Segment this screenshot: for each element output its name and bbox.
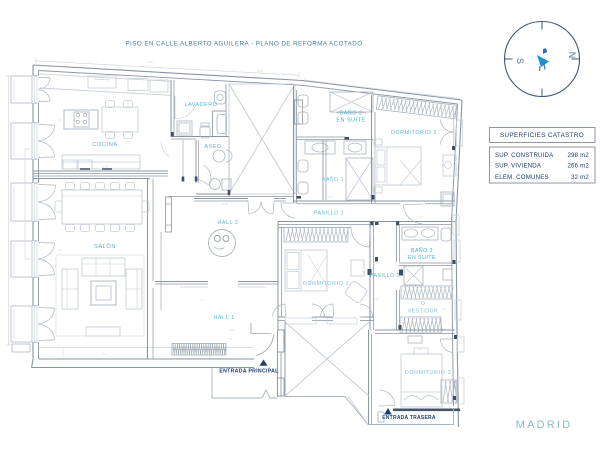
svg-text:2.0: 2.0	[442, 307, 446, 311]
svg-text:ENTRADA PRINCIPAL: ENTRADA PRINCIPAL	[219, 369, 279, 375]
svg-text:2.2: 2.2	[338, 223, 342, 227]
svg-text:1.9: 1.9	[418, 215, 422, 219]
svg-text:SUPERFICIES CATASTRO: SUPERFICIES CATASTRO	[500, 132, 584, 139]
svg-text:ELEM. COMUNES: ELEM. COMUNES	[495, 174, 549, 181]
svg-text:BAÑO 3: BAÑO 3	[411, 247, 433, 254]
svg-text:COCINA: COCINA	[92, 142, 117, 148]
svg-text:SALÓN: SALÓN	[94, 243, 116, 250]
svg-text:3.4: 3.4	[228, 337, 232, 341]
svg-text:4.10: 4.10	[327, 195, 333, 199]
svg-text:N: N	[567, 52, 577, 59]
svg-text:3.9: 3.9	[456, 167, 460, 171]
svg-text:3.2: 3.2	[418, 347, 422, 351]
svg-text:VESTIDOR: VESTIDOR	[408, 309, 439, 315]
svg-text:LAVADERO: LAVADERO	[185, 102, 218, 108]
svg-text:4.70: 4.70	[102, 165, 108, 169]
svg-text:3.1: 3.1	[298, 252, 302, 256]
svg-text:4.43: 4.43	[24, 257, 30, 261]
svg-text:PASILLO 2: PASILLO 2	[370, 273, 400, 279]
svg-text:BAÑO 1: BAÑO 1	[322, 176, 344, 183]
svg-text:3.10: 3.10	[257, 69, 263, 73]
svg-text:PASILLO 1: PASILLO 1	[314, 211, 344, 217]
svg-text:MADRID: MADRID	[516, 419, 573, 431]
svg-text:EN SUITE: EN SUITE	[408, 255, 436, 261]
svg-text:SUP. VIVIENDA: SUP. VIVIENDA	[495, 163, 542, 170]
svg-text:1.2: 1.2	[374, 297, 378, 301]
svg-text:EN SUITE: EN SUITE	[336, 118, 365, 124]
svg-text:ASEO: ASEO	[204, 144, 221, 150]
svg-text:5.1: 5.1	[103, 352, 107, 356]
svg-text:5.96: 5.96	[147, 60, 153, 64]
svg-text:32 m2: 32 m2	[571, 174, 589, 181]
svg-text:266 m2: 266 m2	[567, 163, 589, 170]
svg-text:DORMITORIO 2: DORMITORIO 2	[391, 130, 437, 136]
svg-text:SUP. CONSTRUIDA: SUP. CONSTRUIDA	[495, 152, 554, 159]
svg-text:2.96: 2.96	[24, 147, 30, 151]
svg-text:ENTRADA TRASERA: ENTRADA TRASERA	[382, 415, 436, 421]
svg-text:PISO EN CALLE ALBERTO AGUILERA: PISO EN CALLE ALBERTO AGUILERA - PLANO D…	[125, 41, 362, 48]
svg-text:DORMITORIO 3: DORMITORIO 3	[405, 370, 451, 376]
svg-text:HALL 1: HALL 1	[213, 315, 234, 321]
svg-text:2.46: 2.46	[222, 202, 228, 206]
svg-text:S: S	[515, 58, 525, 64]
svg-text:HALL 2: HALL 2	[217, 220, 238, 226]
svg-text:298 m2: 298 m2	[567, 152, 589, 159]
